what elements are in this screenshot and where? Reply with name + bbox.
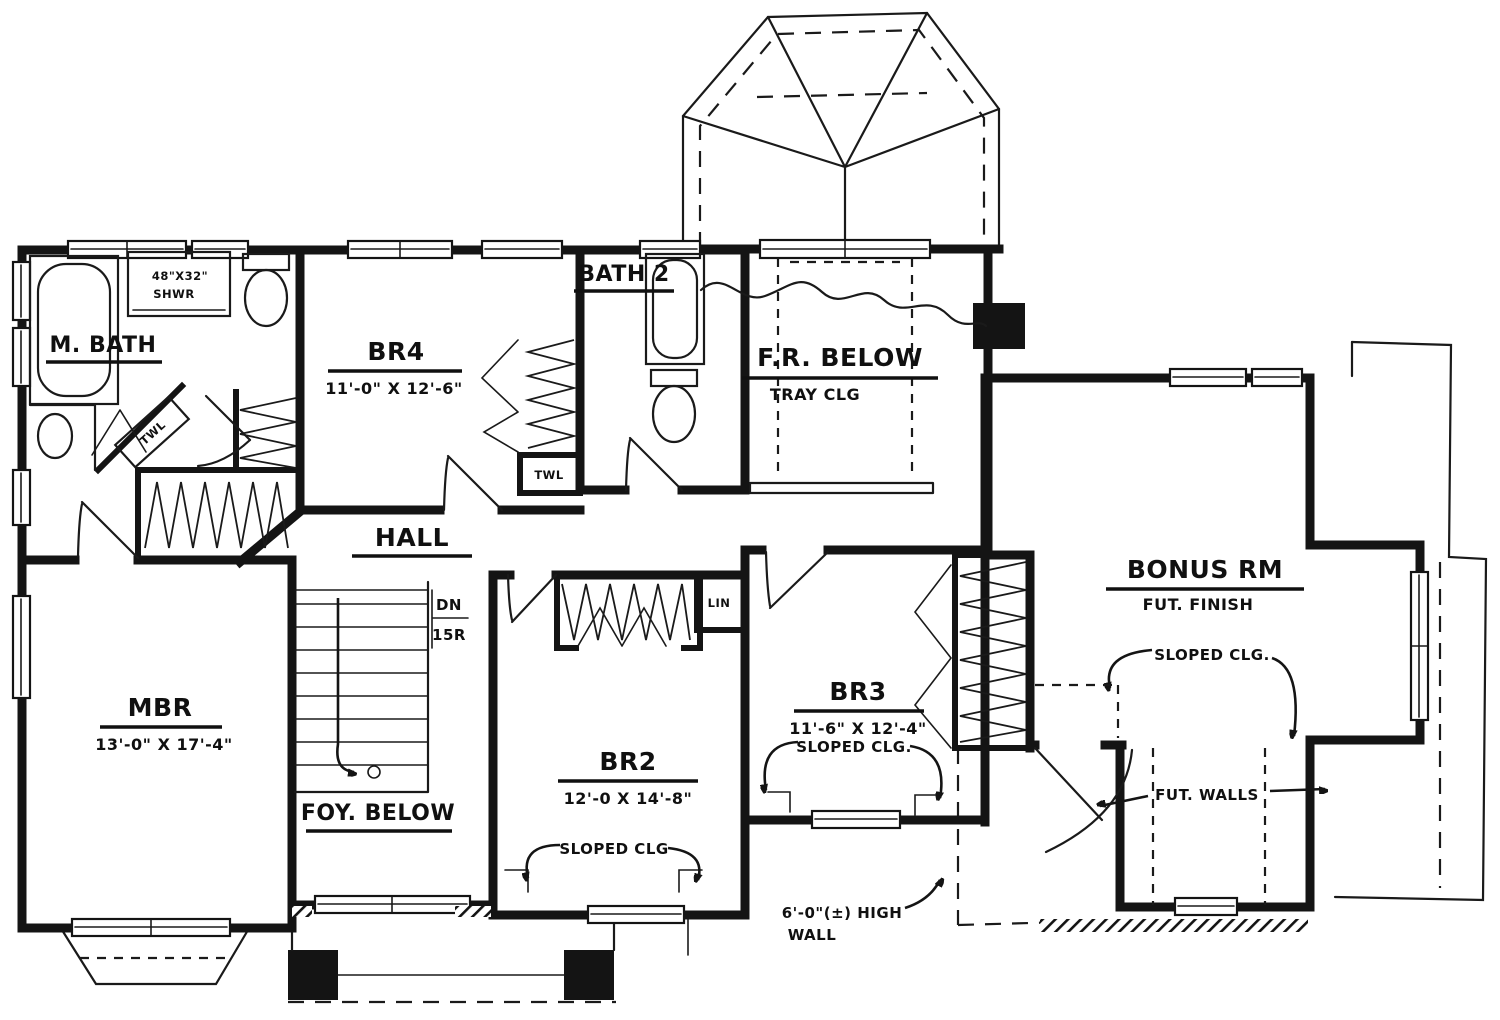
window xyxy=(812,811,900,828)
window xyxy=(13,328,30,386)
porch-pillar-right xyxy=(564,950,614,1000)
label-shower-size: 48"X32" xyxy=(152,269,208,283)
label-br2-dims: 12'-0 X 14'-8" xyxy=(564,789,693,808)
door-mbath xyxy=(198,396,250,466)
porch-below-sketch xyxy=(288,913,688,1002)
label-bonus: BONUS RM xyxy=(1127,555,1283,584)
window xyxy=(1175,898,1237,915)
label-tray-clg: TRAY CLG xyxy=(770,385,860,404)
door-br2 xyxy=(508,575,556,622)
toilet-mbath xyxy=(243,254,289,326)
label-br2: BR2 xyxy=(599,747,656,776)
door-bath2 xyxy=(626,438,682,490)
floor-plan-page: TWL xyxy=(0,0,1500,1020)
turret-roof-sketch xyxy=(683,13,999,248)
door-mbr xyxy=(78,502,138,558)
label-br4-dims: 11'-0" X 12'-6" xyxy=(325,379,463,398)
label-foyer: FOY. BELOW xyxy=(301,801,455,826)
window xyxy=(13,262,30,320)
label-hall: HALL xyxy=(375,523,449,552)
label-br4: BR4 xyxy=(367,337,424,366)
label-shower: SHWR xyxy=(153,287,194,301)
porch-pillar-left xyxy=(288,950,338,1000)
door-br3 xyxy=(766,552,828,608)
window xyxy=(13,596,30,698)
label-bonus-note: FUT. FINISH xyxy=(1143,595,1254,614)
floor-plan-drawing: TWL xyxy=(0,0,1500,1020)
window xyxy=(1411,572,1428,720)
toilet-bath2 xyxy=(651,370,697,442)
label-stairs-dn: DN xyxy=(436,596,462,614)
mbr-bay-window-sketch xyxy=(62,930,248,984)
foyer-window xyxy=(315,896,470,913)
door-br4 xyxy=(444,456,502,510)
label-twl-hall: TWL xyxy=(534,468,564,482)
label-sloped-clg-bonus: SLOPED CLG. xyxy=(1154,646,1270,664)
label-linen: LIN xyxy=(708,596,731,610)
sill-hatch xyxy=(455,906,491,917)
window xyxy=(192,241,248,258)
twl-closet-mbath: TWL xyxy=(115,397,189,467)
window xyxy=(640,241,700,258)
window xyxy=(72,919,230,936)
label-sloped-clg-br3: SLOPED CLG. xyxy=(796,738,912,756)
label-bath2: BATH 2 xyxy=(578,262,669,287)
label-high-wall-1: 6'-0"(±) HIGH xyxy=(782,904,903,922)
label-mbr-dims: 13'-0" X 17'-4" xyxy=(95,735,233,754)
label-mbath: M. BATH xyxy=(50,333,157,358)
vanity-sink-mbath xyxy=(30,405,95,470)
master-tub xyxy=(30,256,118,404)
roof-hatch-strip xyxy=(1040,919,1308,932)
annotation-marks xyxy=(505,650,1325,908)
window xyxy=(588,906,684,923)
label-family-room: F.R. BELOW xyxy=(757,343,923,372)
window xyxy=(1252,369,1302,386)
turret-window xyxy=(760,240,930,258)
label-br3-dims: 11'-6" X 12'-4" xyxy=(789,719,927,738)
label-br3: BR3 xyxy=(829,677,886,706)
master-shower xyxy=(128,252,230,316)
label-mbr: MBR xyxy=(128,693,193,722)
window xyxy=(1170,369,1246,386)
label-future-walls: FUT. WALLS xyxy=(1155,786,1259,804)
window xyxy=(348,241,452,258)
label-high-wall-2: WALL xyxy=(788,926,837,944)
label-stairs-15r: 15R xyxy=(432,626,466,644)
label-sloped-clg-br2: SLOPED CLG xyxy=(559,840,668,858)
window xyxy=(482,241,562,258)
window xyxy=(13,470,30,525)
sill-hatch xyxy=(292,906,312,917)
